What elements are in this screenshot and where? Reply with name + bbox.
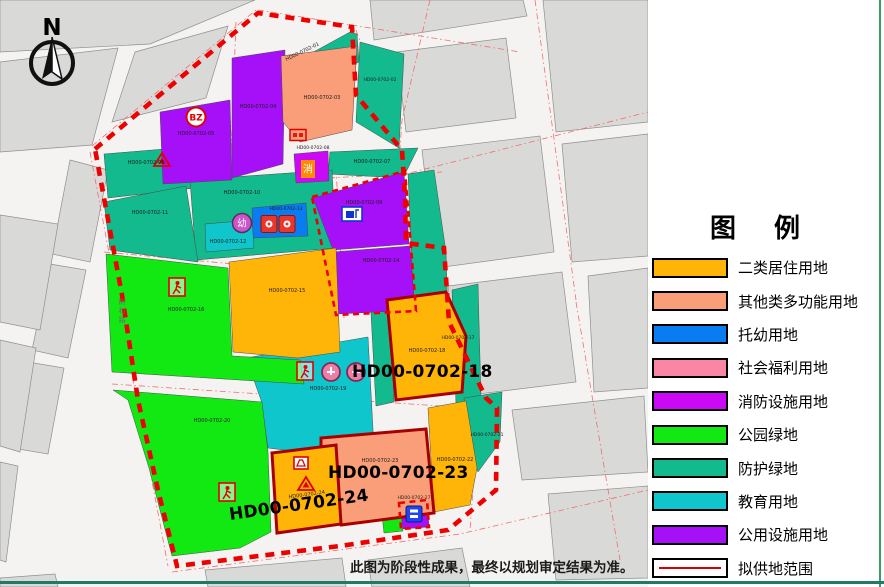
legend-item-multifunction: 其他类多功能用地 <box>652 284 858 317</box>
parcel-label: HD00-0702-07 <box>354 159 391 165</box>
zoning-map: BZ 消 幼 <box>0 0 648 587</box>
legend-label: 公用设施用地 <box>738 524 828 545</box>
bottom-edge-line <box>0 581 884 584</box>
parcel-label: HD00-0702-27 <box>397 495 430 501</box>
welfare-badge-icon <box>261 216 277 233</box>
red-box-marker-icon <box>290 130 306 141</box>
legend-swatch <box>652 324 728 344</box>
parcel-label: HD00-0702-12 <box>210 239 247 245</box>
legend-panel: 图 例 二类居住用地 其他类多功能用地 托幼用地 社会福利用地 消防设施用地 <box>648 0 884 587</box>
utility-icon <box>406 506 422 522</box>
big-label-18: HD00-0702-18 <box>352 362 493 382</box>
legend-label: 二类居住用地 <box>738 257 828 278</box>
legend-label: 拟供地范围 <box>738 558 813 579</box>
parcel-04 <box>232 50 285 178</box>
supply-line-sample <box>659 567 721 570</box>
pedestrian-icon <box>297 362 313 380</box>
legend-swatch <box>652 258 728 278</box>
legend-item-welfare: 社会福利用地 <box>652 351 858 384</box>
parcel-label: HD00-0702-03 <box>304 95 341 101</box>
parcel-label: HD00-0702-02 <box>363 77 396 83</box>
legend-label: 防护绿地 <box>738 458 798 479</box>
legend-item-park: 公园绿地 <box>652 418 858 451</box>
legend-item-fire: 消防设施用地 <box>652 385 858 418</box>
bz-badge-text: BZ <box>189 114 203 124</box>
legend-item-protective-green: 防护绿地 <box>652 451 858 484</box>
parcel-label: HD00-0702-13 <box>269 206 302 212</box>
road-name-label: 树村路 <box>118 297 126 325</box>
parcel-label: HD00-0702-19 <box>310 386 347 392</box>
parcel-label: HD00-0702-14 <box>363 258 400 264</box>
legend-swatch <box>652 291 728 311</box>
legend-rows: 二类居住用地 其他类多功能用地 托幼用地 社会福利用地 消防设施用地 公园绿地 <box>652 251 858 585</box>
legend-item-education: 教育用地 <box>652 485 858 518</box>
box-trapezoid-icon <box>294 457 308 469</box>
parcel-label: HD00-0702-21 <box>470 432 503 438</box>
pedestrian-icon <box>219 483 235 501</box>
parcel-11 <box>104 186 198 262</box>
parcel-label: HD00-0702-16 <box>168 307 205 313</box>
welfare-badge-icon <box>279 216 295 233</box>
parcel-label: HD00-0702-10 <box>224 190 261 196</box>
parcel-label: HD00-0702-17 <box>441 335 474 341</box>
zoning-map-svg: BZ 消 幼 <box>0 0 648 587</box>
legend-label: 社会福利用地 <box>738 357 828 378</box>
legend-label: 其他类多功能用地 <box>738 291 858 312</box>
parcel-02 <box>356 42 404 148</box>
kindergarten-badge-text: 幼 <box>237 218 247 230</box>
legend-swatch <box>652 491 728 511</box>
big-label-23: HD00-0702-23 <box>328 463 469 483</box>
legend-item-residential: 二类居住用地 <box>652 251 858 284</box>
parcel-20 <box>113 390 271 556</box>
legend-swatch <box>652 458 728 478</box>
fire-station-icon: 消 <box>301 160 315 178</box>
legend-item-supply-boundary: 拟供地范围 <box>652 552 858 585</box>
parcel-label: HD00-0702-08 <box>296 145 329 151</box>
legend-label: 托幼用地 <box>738 324 798 345</box>
legend-swatch <box>652 391 728 411</box>
parcel-03 <box>281 46 357 142</box>
parcel-label: HD00-0702-04 <box>240 104 277 110</box>
parcel-15 <box>229 248 340 358</box>
parcel-label: HD00-0702-11 <box>132 210 169 216</box>
parcel-label: HD00-0702-18 <box>409 348 446 354</box>
kindergarten-icon: 幼 <box>233 214 252 233</box>
legend-swatch <box>652 358 728 378</box>
building-icon <box>342 207 362 221</box>
parcel-label: HD00-0702-20 <box>194 418 231 424</box>
legend-swatch-supply-line <box>652 558 728 578</box>
parcel-18 <box>387 292 466 400</box>
legend-item-nursery: 托幼用地 <box>652 318 858 351</box>
legend-label: 消防设施用地 <box>738 391 828 412</box>
legend-swatch <box>652 425 728 445</box>
pedestrian-icon <box>169 278 185 296</box>
legend-swatch <box>652 525 728 545</box>
pink-circle-badge-icon <box>322 363 340 381</box>
right-edge-line <box>879 0 881 587</box>
parcel-label: HD00-0702-06 <box>128 160 165 166</box>
legend-title: 图 例 <box>648 208 868 245</box>
legend-label: 公园绿地 <box>738 424 798 445</box>
parcel-label: HD00-0702-15 <box>269 288 306 294</box>
bz-badge: BZ <box>187 108 206 127</box>
legend-item-utility: 公用设施用地 <box>652 518 858 551</box>
disclaimer-text: 此图为阶段性成果，最终以规划审定结果为准。 <box>350 556 634 576</box>
legend-label: 教育用地 <box>738 491 798 512</box>
parcel-label: HD00-0702-09 <box>346 200 383 206</box>
planning-map-page: BZ 消 幼 <box>0 0 884 587</box>
parcel-label: HD00-0702-05 <box>178 131 215 137</box>
fire-badge-text: 消 <box>303 163 313 176</box>
